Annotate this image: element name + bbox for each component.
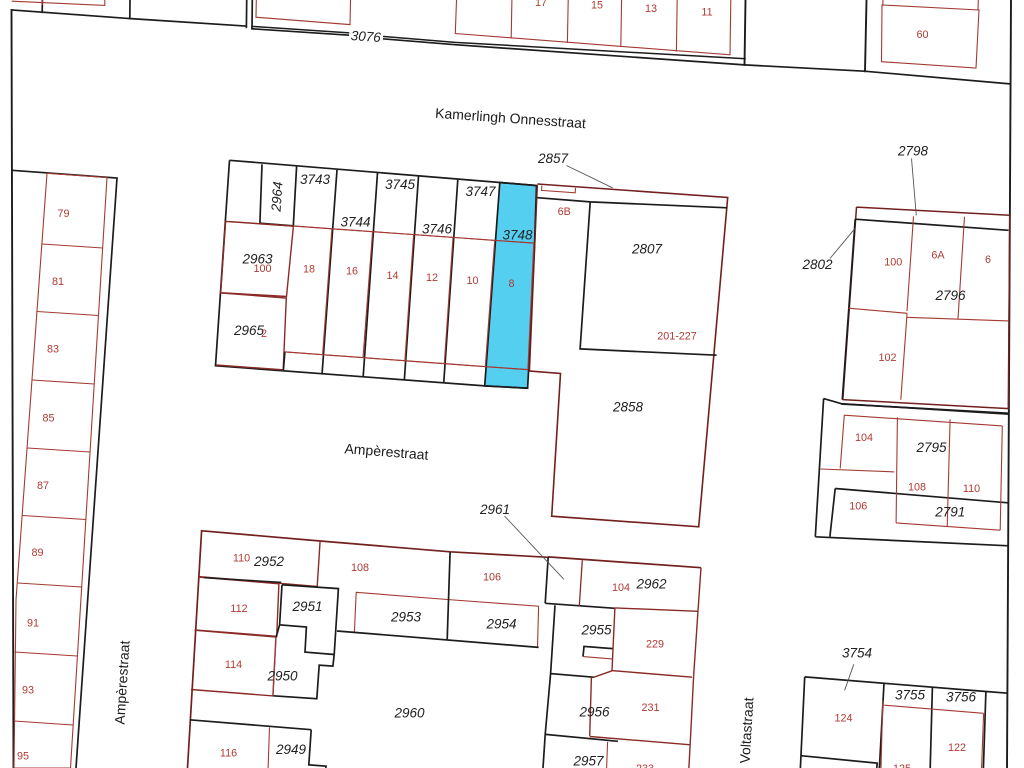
svg-text:106: 106	[483, 572, 501, 584]
svg-text:114: 114	[225, 659, 242, 671]
svg-text:100: 100	[884, 257, 902, 269]
svg-text:2954: 2954	[485, 617, 516, 632]
svg-text:233: 233	[636, 763, 654, 768]
svg-text:3076: 3076	[350, 28, 381, 45]
svg-text:3756: 3756	[946, 690, 977, 705]
svg-text:8: 8	[508, 278, 514, 290]
svg-text:110: 110	[963, 483, 980, 495]
svg-text:2807: 2807	[631, 242, 663, 257]
svg-text:91: 91	[27, 618, 39, 630]
svg-text:81: 81	[52, 276, 64, 288]
svg-text:6A: 6A	[931, 250, 945, 262]
svg-text:2949: 2949	[275, 742, 307, 757]
svg-text:110: 110	[233, 553, 250, 565]
svg-text:108: 108	[908, 482, 926, 494]
svg-text:79: 79	[57, 208, 69, 220]
svg-text:83: 83	[47, 344, 59, 356]
svg-text:2951: 2951	[291, 599, 322, 614]
svg-text:3748: 3748	[502, 228, 533, 243]
svg-text:2858: 2858	[612, 400, 644, 415]
svg-text:16: 16	[346, 266, 358, 278]
svg-text:231: 231	[641, 702, 659, 714]
svg-text:116: 116	[220, 748, 237, 760]
svg-text:125: 125	[893, 763, 911, 768]
svg-text:2961: 2961	[479, 502, 510, 517]
svg-text:104: 104	[612, 582, 630, 594]
svg-text:2952: 2952	[253, 554, 285, 569]
svg-text:108: 108	[351, 562, 369, 574]
svg-text:6B: 6B	[558, 206, 571, 218]
svg-text:100: 100	[253, 263, 271, 275]
svg-text:18: 18	[303, 264, 315, 276]
svg-text:201-227: 201-227	[657, 331, 697, 343]
svg-text:2957: 2957	[572, 754, 604, 768]
svg-text:2796: 2796	[934, 288, 966, 303]
svg-text:2: 2	[261, 328, 267, 340]
svg-text:3754: 3754	[842, 646, 872, 661]
svg-text:87: 87	[37, 480, 49, 492]
svg-text:3755: 3755	[895, 688, 926, 703]
svg-text:2798: 2798	[897, 144, 929, 159]
svg-text:102: 102	[878, 352, 896, 364]
svg-text:6: 6	[985, 254, 991, 266]
svg-text:13: 13	[645, 3, 657, 15]
svg-text:122: 122	[948, 742, 966, 754]
svg-text:124: 124	[834, 713, 852, 725]
svg-text:3744: 3744	[340, 215, 370, 230]
svg-text:106: 106	[849, 501, 867, 513]
svg-text:2962: 2962	[635, 577, 667, 592]
svg-text:15: 15	[591, 0, 603, 12]
svg-text:14: 14	[386, 270, 398, 282]
svg-text:2953: 2953	[390, 610, 422, 625]
svg-text:85: 85	[42, 413, 54, 425]
svg-text:229: 229	[646, 639, 664, 651]
svg-text:12: 12	[426, 272, 438, 284]
svg-text:2960: 2960	[393, 706, 425, 721]
svg-text:93: 93	[22, 685, 34, 697]
svg-text:95: 95	[17, 751, 29, 763]
svg-text:104: 104	[855, 432, 873, 444]
svg-text:2955: 2955	[580, 623, 612, 638]
svg-text:3745: 3745	[385, 177, 416, 192]
svg-text:10: 10	[466, 275, 478, 287]
svg-text:11: 11	[701, 7, 712, 19]
svg-text:2802: 2802	[801, 257, 833, 272]
svg-text:2795: 2795	[915, 440, 947, 455]
svg-text:3746: 3746	[422, 222, 453, 237]
svg-text:2956: 2956	[578, 705, 610, 720]
svg-text:2965: 2965	[233, 323, 265, 338]
svg-text:2857: 2857	[537, 151, 569, 166]
svg-text:17: 17	[535, 0, 547, 9]
svg-text:2791: 2791	[934, 505, 965, 520]
svg-text:2950: 2950	[266, 669, 298, 684]
svg-text:2964: 2964	[268, 181, 285, 213]
svg-text:3743: 3743	[300, 172, 331, 187]
svg-text:112: 112	[230, 603, 247, 615]
svg-text:60: 60	[916, 29, 928, 41]
svg-text:3747: 3747	[465, 184, 496, 199]
svg-text:89: 89	[31, 547, 43, 559]
